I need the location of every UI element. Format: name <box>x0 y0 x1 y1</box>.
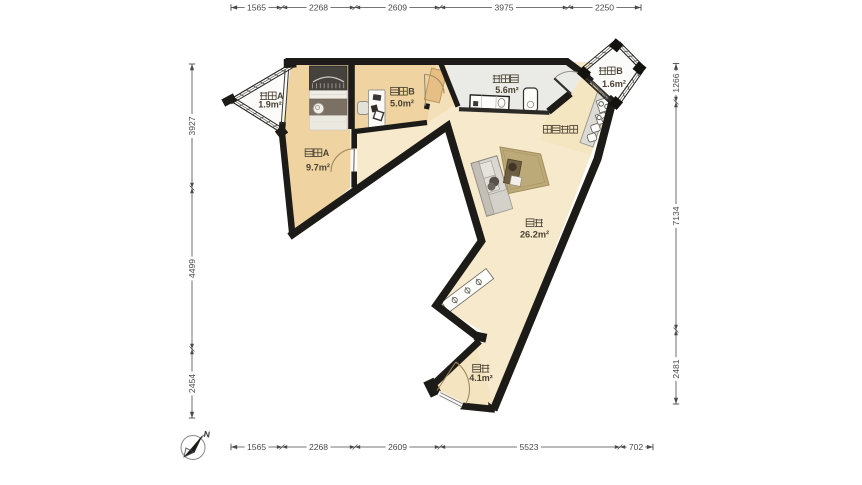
svg-text:1.9m²: 1.9m² <box>258 100 282 110</box>
svg-text:B: B <box>616 66 623 76</box>
svg-text:1565: 1565 <box>247 442 266 452</box>
svg-text:26.2m²: 26.2m² <box>520 230 549 240</box>
svg-text:9.7m²: 9.7m² <box>306 163 330 173</box>
svg-text:2481: 2481 <box>671 359 681 378</box>
svg-text:3975: 3975 <box>494 3 513 13</box>
svg-text:1266: 1266 <box>671 73 681 92</box>
svg-text:4.1m²: 4.1m² <box>469 373 493 383</box>
svg-text:2268: 2268 <box>309 3 328 13</box>
svg-text:4499: 4499 <box>187 259 197 278</box>
svg-text:2250: 2250 <box>595 3 614 13</box>
svg-text:A: A <box>323 148 330 158</box>
svg-text:N: N <box>203 429 210 440</box>
svg-text:5523: 5523 <box>519 442 538 452</box>
svg-text:2609: 2609 <box>388 442 407 452</box>
svg-text:1565: 1565 <box>247 3 266 13</box>
svg-text:5.6m²: 5.6m² <box>495 85 519 95</box>
svg-text:2609: 2609 <box>388 3 407 13</box>
svg-text:3927: 3927 <box>187 116 197 135</box>
svg-text:702: 702 <box>629 442 644 452</box>
svg-text:2268: 2268 <box>309 442 328 452</box>
svg-text:5.0m²: 5.0m² <box>390 98 414 108</box>
svg-text:B: B <box>408 86 415 96</box>
svg-text:7134: 7134 <box>671 206 681 225</box>
svg-text:2454: 2454 <box>187 374 197 393</box>
svg-text:1.6m²: 1.6m² <box>602 79 626 89</box>
